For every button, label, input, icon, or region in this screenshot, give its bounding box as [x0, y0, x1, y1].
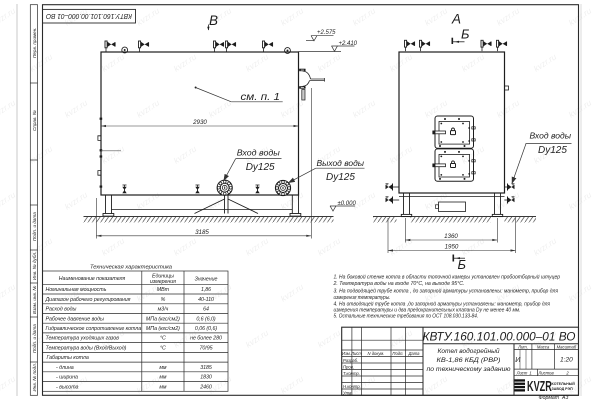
svg-text:Лист: Лист [350, 351, 362, 356]
svg-text:N докум.: N докум. [368, 351, 385, 356]
svg-text:Перв. примен.: Перв. примен. [32, 27, 37, 58]
svg-text:А3: А3 [561, 395, 568, 400]
svg-text:Номинальная мощность: Номинальная мощность [46, 287, 107, 293]
svg-text:Изм.: Изм. [342, 351, 351, 356]
svg-text:3. На подводящей трубе котла: 3. На подводящей трубе котла , до запорн… [334, 287, 559, 294]
svg-text:Справ. №: Справ. № [32, 110, 37, 131]
svg-text:1:20: 1:20 [560, 356, 573, 363]
svg-text:Температура воды (Вход/Выход): Температура воды (Вход/Выход) [46, 346, 127, 352]
svg-text:Dy125: Dy125 [246, 162, 275, 173]
svg-text:измерения: измерения [150, 279, 176, 285]
svg-text:Dy125: Dy125 [326, 172, 355, 183]
svg-text:И: И [515, 355, 521, 364]
svg-text:Пров.: Пров. [343, 364, 354, 369]
svg-text:МВт: МВт [157, 287, 170, 293]
svg-text:Лит.: Лит. [517, 344, 528, 349]
svg-text:Утв.: Утв. [343, 390, 353, 395]
svg-text:2. Температура воды на входе: 2. Температура воды на входе 70°С, на вы… [333, 281, 465, 287]
svg-text:Вход воды: Вход воды [237, 149, 280, 158]
svg-text:40-110: 40-110 [198, 297, 214, 303]
svg-text:по техническому заданию: по техническому заданию [427, 365, 511, 373]
svg-text:Рабочее давление воды: Рабочее давление воды [46, 316, 104, 322]
svg-text:см. п. 1: см. п. 1 [241, 92, 281, 103]
svg-text:+2.575: +2.575 [317, 30, 336, 36]
svg-text:Лист: Лист [516, 370, 528, 375]
svg-text:КВТУ.160.101.00.000–01 ВО: КВТУ.160.101.00.000–01 ВО [46, 12, 132, 21]
svg-text:70/95: 70/95 [199, 346, 212, 352]
svg-text:В: В [209, 13, 218, 28]
svg-text:МПа (кгс/см2): МПа (кгс/см2) [146, 326, 180, 332]
svg-text:1830: 1830 [200, 375, 212, 381]
svg-text:64: 64 [203, 307, 209, 313]
svg-text:Вход воды: Вход воды [530, 132, 572, 141]
svg-text:Котел водогрейный: Котел водогрейный [438, 347, 500, 355]
svg-text:Инв. № дубл.: Инв. № дубл. [32, 252, 37, 280]
svg-text:2460: 2460 [199, 385, 212, 391]
svg-text:3185: 3185 [200, 365, 212, 371]
svg-text:Диапазон рабочего регулировани: Диапазон рабочего регулирования [45, 297, 131, 303]
svg-text:3185: 3185 [195, 229, 209, 236]
svg-text:+2.410: +2.410 [339, 41, 358, 47]
svg-text:Дата: Дата [407, 351, 420, 356]
svg-text:5. Остальные технические треб: 5. Остальные технические требования по О… [334, 314, 479, 320]
svg-text:0,6 (6,0): 0,6 (6,0) [196, 316, 216, 322]
svg-text:мм: мм [159, 385, 167, 391]
svg-text:Наименование показателя: Наименование показателя [59, 276, 126, 282]
svg-text:- ширина: - ширина [56, 375, 78, 381]
svg-text:Гидравлическое сопротивление к: Гидравлическое сопротивление котла [46, 326, 142, 332]
svg-text:измерения температуры.: измерения температуры. [334, 295, 391, 301]
svg-text:Значение: Значение [195, 277, 218, 283]
svg-text:Формат: Формат [539, 395, 560, 400]
svg-text:Подп.: Подп. [392, 351, 403, 356]
svg-text:- длина: - длина [56, 365, 74, 371]
svg-text:Масштаб: Масштаб [557, 344, 577, 349]
svg-text:КОТЕЛЬНЫЙ: КОТЕЛЬНЫЙ [552, 382, 576, 386]
svg-text:KVZR: KVZR [527, 378, 552, 395]
svg-text:мм: мм [159, 365, 167, 371]
svg-text:1950: 1950 [445, 244, 459, 251]
svg-text:Техническая характеристика: Техническая характеристика [90, 265, 173, 271]
svg-text:Б: Б [458, 257, 467, 272]
svg-text:4. На отводящей трубе котла ,: 4. На отводящей трубе котла ,до запорной… [334, 300, 551, 307]
svg-text:Разраб.: Разраб. [343, 358, 358, 363]
svg-text:°С: °С [160, 336, 166, 342]
svg-text:2930: 2930 [192, 119, 207, 126]
svg-text:мм: мм [159, 375, 167, 381]
svg-text:Листов: Листов [537, 370, 554, 375]
svg-text:м3/ч: м3/ч [158, 307, 169, 313]
svg-text:Расход воды: Расход воды [46, 307, 77, 313]
svg-text:1. На боковой стенке котла в: 1. На боковой стенке котла в области топ… [334, 274, 561, 281]
svg-text:Подп. и дата: Подп. и дата [32, 324, 37, 353]
svg-text:Б: Б [461, 27, 470, 42]
svg-text:Подп. и дата: Подп. и дата [32, 212, 37, 241]
svg-text:Масса: Масса [537, 344, 550, 349]
svg-text:0,06 (0,6): 0,06 (0,6) [195, 326, 217, 332]
svg-text:%: % [161, 297, 166, 303]
svg-text:Н.контр.: Н.контр. [343, 384, 361, 389]
svg-text:- высота: - высота [56, 385, 78, 391]
svg-text:МПа (кгс/см2): МПа (кгс/см2) [146, 316, 180, 322]
svg-text:не более 280: не более 280 [190, 336, 222, 342]
svg-text:°С: °С [160, 346, 166, 352]
svg-text:Выход воды: Выход воды [317, 159, 365, 168]
svg-text:1360: 1360 [444, 233, 458, 240]
svg-text:Температура уходящих газов: Температура уходящих газов [46, 336, 120, 342]
svg-text:Dy125: Dy125 [538, 145, 567, 156]
svg-text:±0.000: ±0.000 [338, 201, 357, 207]
svg-text:Габариты котла: Габариты котла [47, 355, 89, 361]
svg-text:А: А [451, 12, 461, 27]
svg-text:Взам. инв. №: Взам. инв. № [32, 286, 37, 314]
svg-text:1,86: 1,86 [201, 287, 211, 293]
svg-text:КВ-1,86 КБД (РВР): КВ-1,86 КБД (РВР) [437, 357, 501, 364]
svg-text:1: 1 [529, 370, 531, 375]
svg-text:Инв. № подл.: Инв. № подл. [32, 363, 37, 392]
svg-text:Т.контр.: Т.контр. [343, 371, 360, 376]
svg-text:КВТУ.160.101.00.000–01 ВО: КВТУ.160.101.00.000–01 ВО [423, 330, 576, 344]
svg-text:ЗАВОД РЭП: ЗАВОД РЭП [552, 387, 574, 391]
